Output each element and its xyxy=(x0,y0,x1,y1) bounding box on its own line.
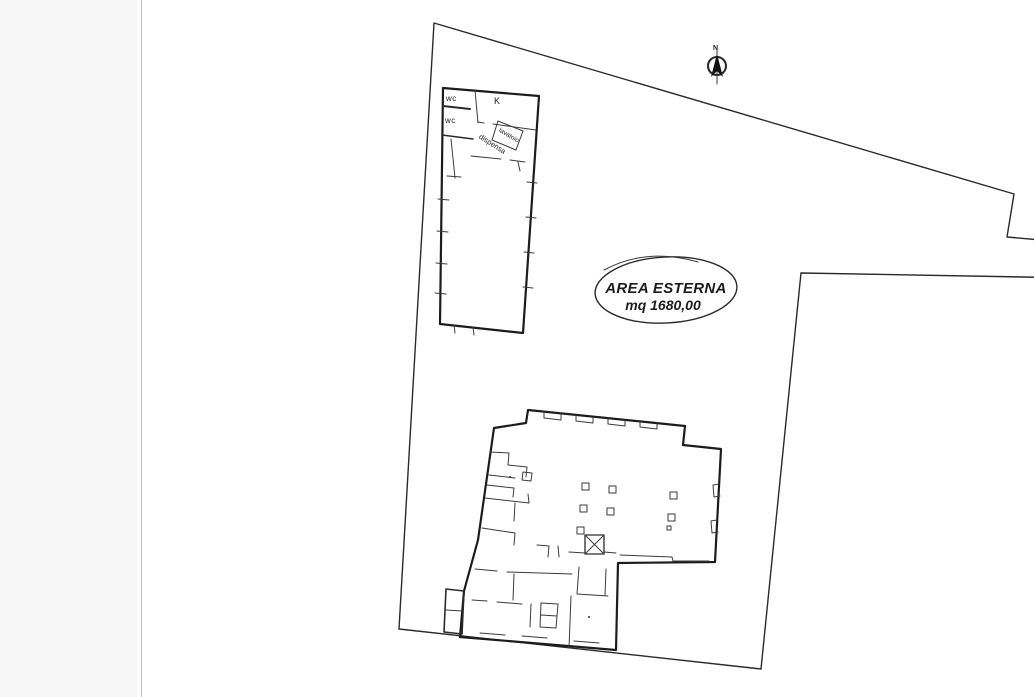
north-arrow-icon: N xyxy=(708,45,726,84)
room-label-kitchen: K xyxy=(494,96,500,106)
room-label-wc-top: wc xyxy=(445,94,457,103)
outdoor-area-label: AREA ESTERNA mq 1680,00 xyxy=(593,253,738,326)
room-label-wc-bottom: wc xyxy=(444,116,456,125)
outdoor-area-title: AREA ESTERNA xyxy=(604,280,726,297)
main-building xyxy=(444,410,721,650)
floor-plan-drawing: N wc wc K lavatoio dispensa xyxy=(142,0,1034,697)
outdoor-area-size: mq 1680,00 xyxy=(625,297,701,313)
annex-building: wc wc K lavatoio dispensa xyxy=(435,88,539,335)
site-boundary xyxy=(399,23,1034,669)
room-label-laundry: lavatoio xyxy=(497,127,520,145)
viewer-left-panel xyxy=(0,0,137,697)
column-grid xyxy=(577,483,677,534)
plan-page: N wc wc K lavatoio dispensa xyxy=(142,0,1034,697)
stair-shaft xyxy=(585,535,604,554)
north-label: N xyxy=(713,45,718,52)
